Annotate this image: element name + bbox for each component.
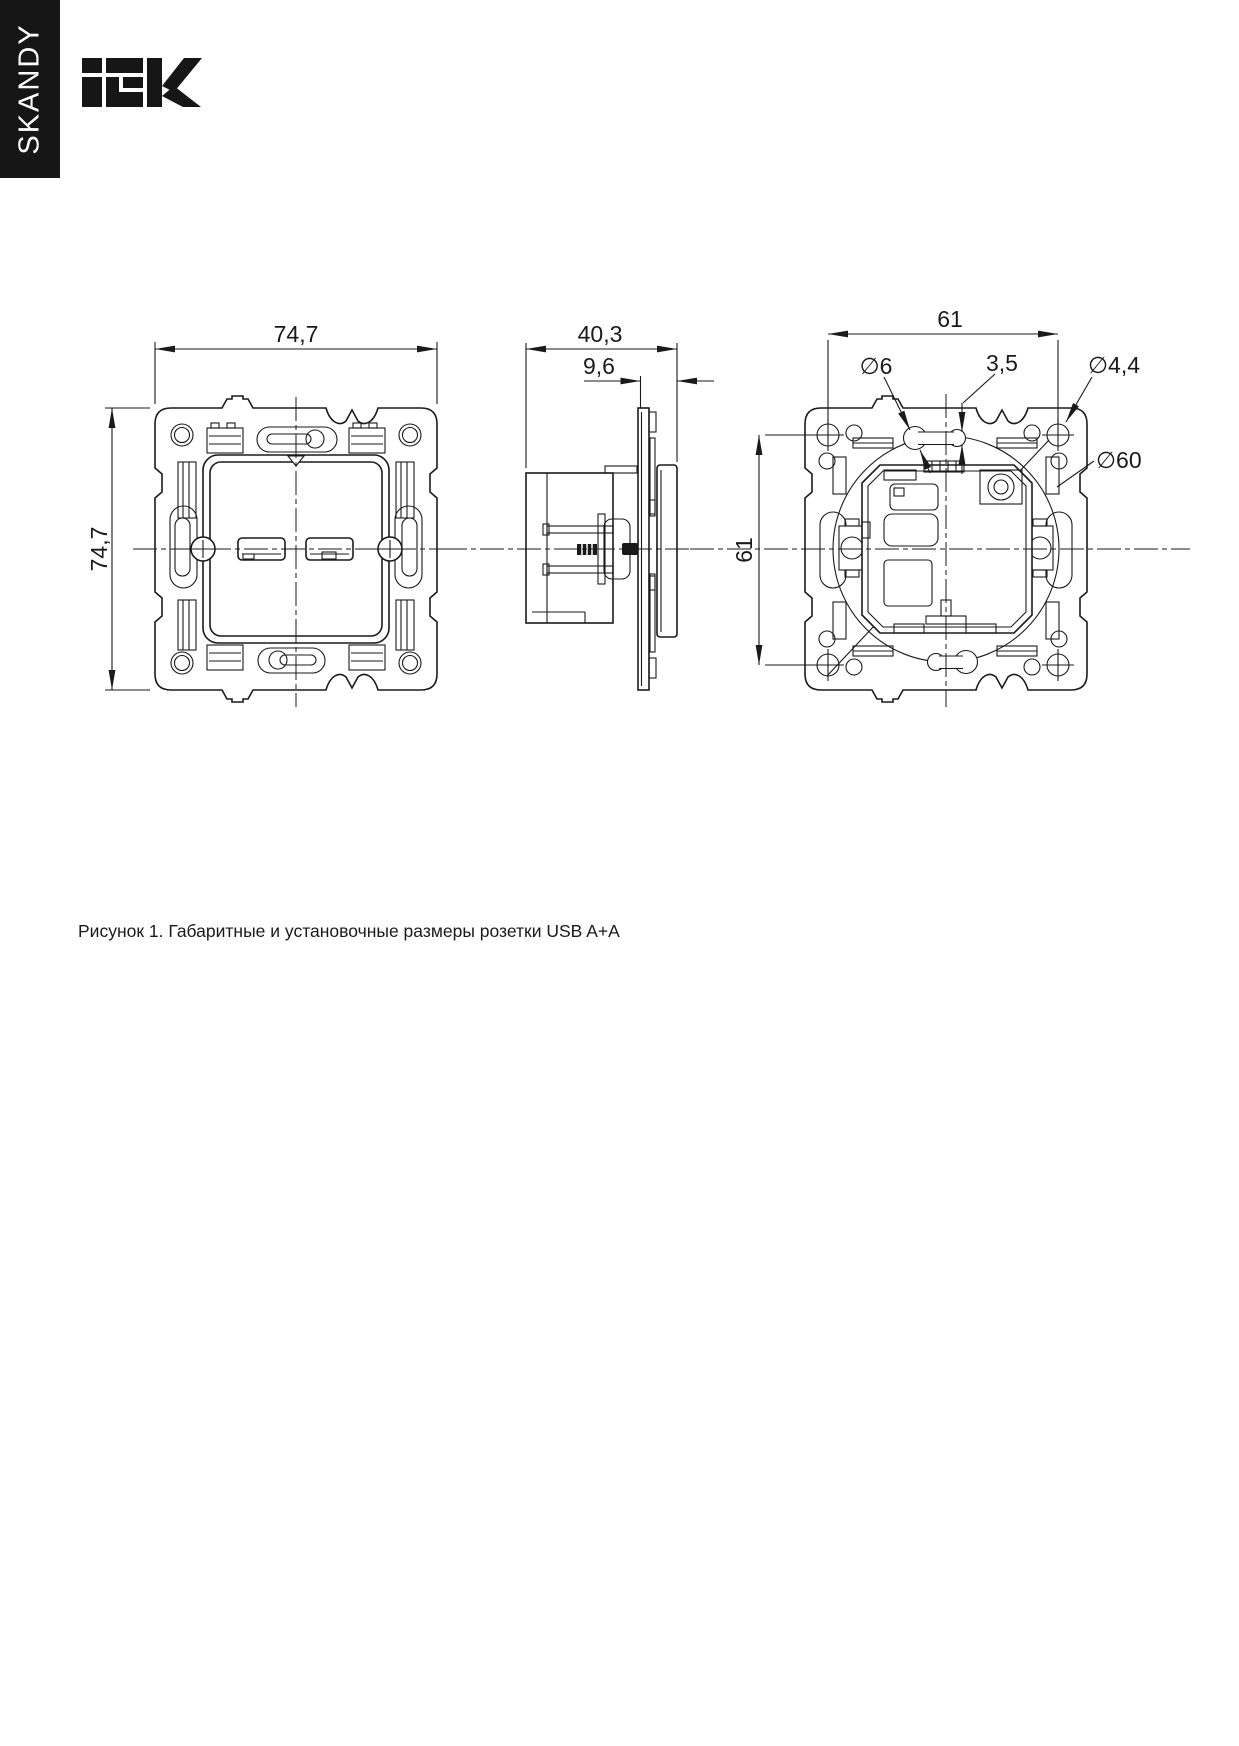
rear-height-dimension: 61	[731, 435, 816, 665]
side-mechanism-body	[526, 473, 613, 623]
technical-drawing: 74,7 74,7	[0, 0, 1239, 1020]
rear-width-value: 61	[937, 306, 963, 332]
side-depth-dimension: 40,3	[526, 321, 677, 468]
front-width-value: 74,7	[274, 321, 319, 347]
side-depth-value: 40,3	[578, 321, 623, 347]
document-page: SKANDY	[0, 0, 1239, 1746]
side-protrusion-value: 9,6	[583, 353, 615, 379]
front-view-drawing: 74,7 74,7	[86, 321, 457, 707]
rear-slot-hole-value: ∅6	[860, 353, 893, 379]
rear-height-value: 61	[731, 537, 757, 563]
front-width-dimension: 74,7	[155, 321, 437, 404]
side-protrusion-dimension: 9,6	[583, 353, 714, 408]
side-cover-panel	[657, 465, 677, 637]
rear-view-drawing: 61 61 ∅6 3,5	[690, 306, 1190, 707]
rear-mount-hole-value: ∅4,4	[1088, 352, 1140, 378]
rear-slot-width-value: 3,5	[986, 350, 1018, 376]
front-height-value: 74,7	[86, 527, 112, 572]
rear-box-diameter-value: ∅60	[1096, 447, 1142, 473]
figure-caption: Рисунок 1. Габаритные и установочные раз…	[78, 921, 620, 942]
rear-mechanism-box	[862, 461, 1032, 633]
side-view-drawing: 40,3 9,6	[443, 321, 714, 690]
